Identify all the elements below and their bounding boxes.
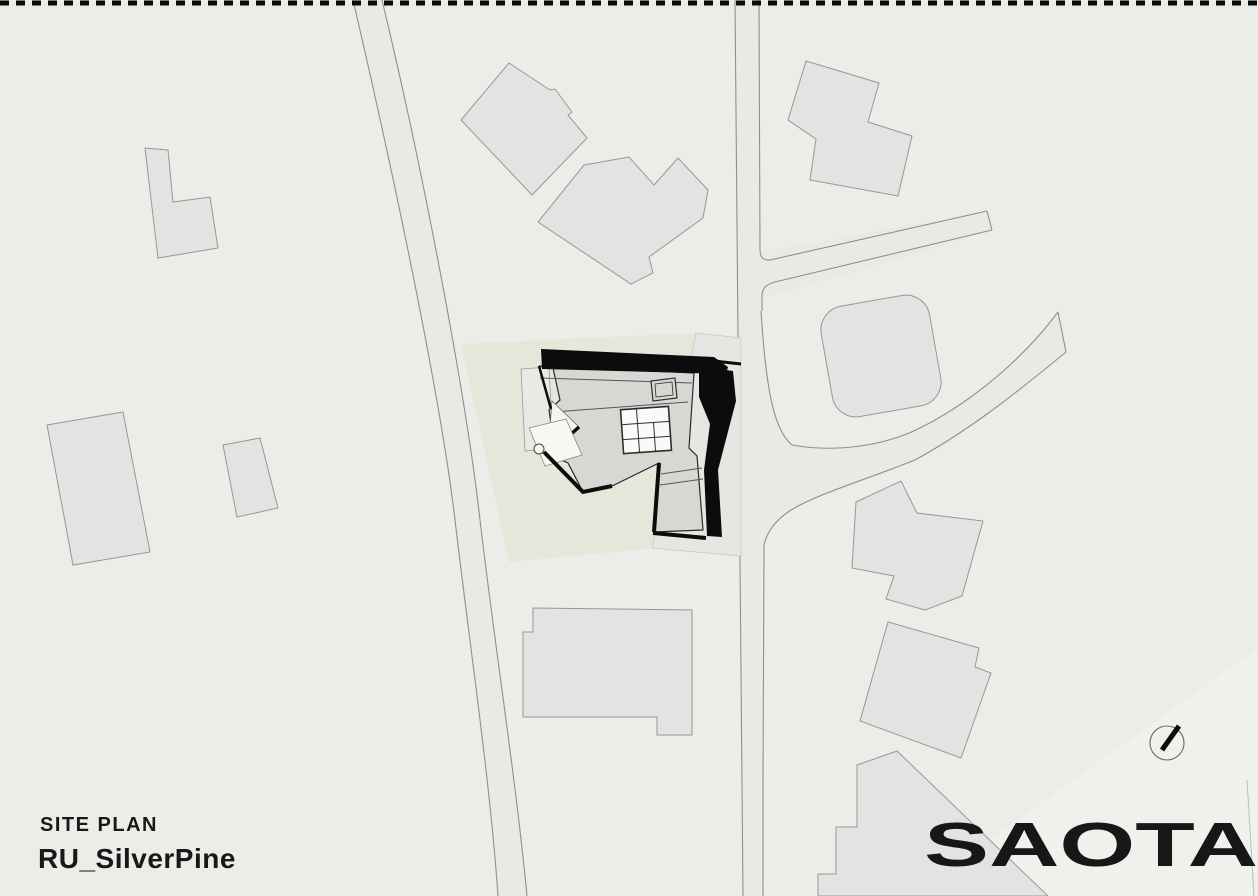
project-name-label: RU_SilverPine <box>38 843 236 874</box>
site-plan-drawing: SITE PLAN RU_SilverPine SAOTA <box>0 0 1258 896</box>
pool-circle <box>534 444 544 454</box>
saota-logo: SAOTA <box>924 811 1258 880</box>
small-rooflight <box>651 378 677 401</box>
site-plan-page: SITE PLAN RU_SilverPine SAOTA <box>0 0 1258 896</box>
skylight-grid <box>621 406 672 453</box>
building-east-rounded-square <box>817 291 945 420</box>
drawing-type-label: SITE PLAN <box>40 814 158 836</box>
building-south-of-site <box>523 608 692 735</box>
